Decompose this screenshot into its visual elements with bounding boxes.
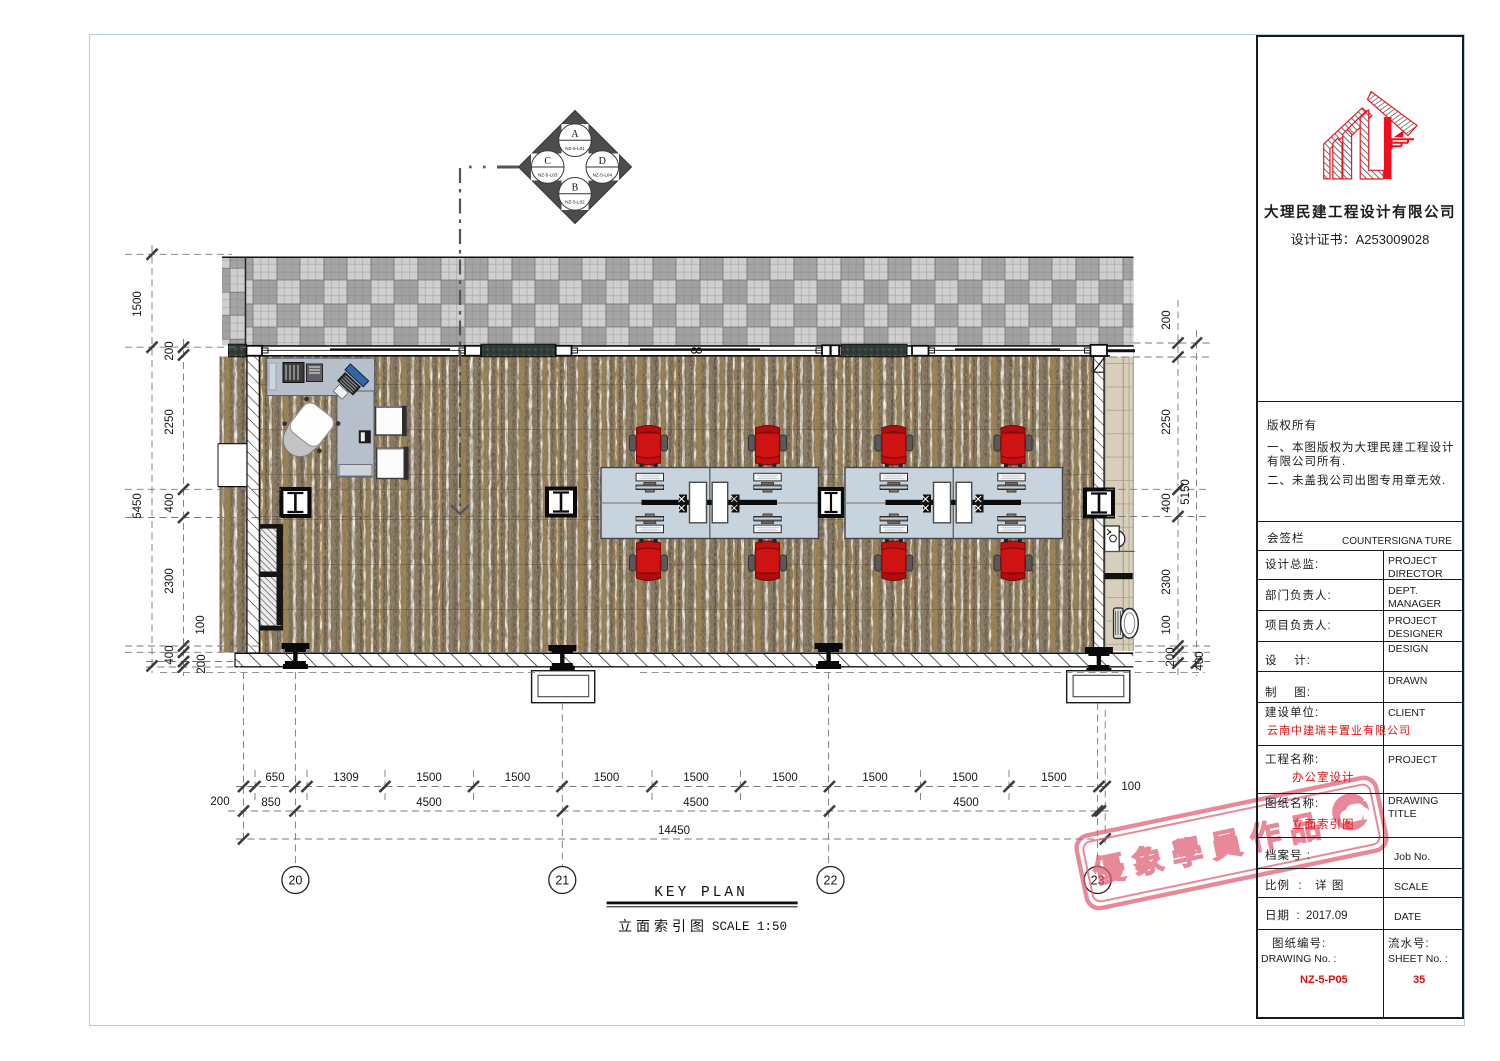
svg-text:4500: 4500 [953, 797, 979, 809]
svg-text:NZ-5-L03: NZ-5-L03 [538, 173, 558, 178]
svg-text:14450: 14450 [658, 825, 690, 837]
svg-text:200: 200 [196, 654, 208, 673]
svg-text:21: 21 [555, 874, 569, 888]
svg-text:400: 400 [164, 645, 176, 664]
svg-text:1500: 1500 [683, 772, 709, 784]
svg-text:D: D [599, 156, 606, 167]
svg-text:200: 200 [1161, 310, 1173, 329]
svg-text:C: C [544, 156, 551, 167]
svg-text:立面索引图: 立面索引图 [618, 918, 708, 934]
svg-text:1309: 1309 [333, 772, 359, 784]
svg-text:100: 100 [1161, 615, 1173, 634]
svg-text:650: 650 [265, 772, 284, 784]
svg-text:SCALE 1:50: SCALE 1:50 [712, 920, 787, 934]
svg-text:1500: 1500 [1041, 772, 1067, 784]
svg-text:20: 20 [288, 874, 302, 888]
svg-text:2300: 2300 [1161, 569, 1173, 595]
svg-text:100: 100 [1121, 781, 1140, 793]
svg-text:400: 400 [1194, 651, 1206, 670]
svg-text:2250: 2250 [164, 409, 176, 435]
svg-text:1500: 1500 [772, 772, 798, 784]
svg-text:NZ-5-L01: NZ-5-L01 [565, 146, 585, 151]
svg-text:B: B [572, 183, 579, 194]
svg-text:200: 200 [164, 341, 176, 360]
svg-text:2300: 2300 [164, 568, 176, 594]
svg-text:200: 200 [1165, 647, 1177, 666]
svg-text:5150: 5150 [1180, 479, 1192, 505]
svg-text:400: 400 [164, 493, 176, 512]
svg-text:1500: 1500 [952, 772, 978, 784]
svg-text:200: 200 [210, 796, 229, 808]
svg-text:NZ-5-L04: NZ-5-L04 [593, 173, 613, 178]
svg-text:KEY PLAN: KEY PLAN [654, 885, 748, 901]
svg-text:4500: 4500 [683, 797, 709, 809]
svg-text:5450: 5450 [132, 493, 144, 519]
svg-text:22: 22 [824, 874, 838, 888]
svg-text:1500: 1500 [862, 772, 888, 784]
svg-text:2250: 2250 [1161, 409, 1173, 435]
svg-text:850: 850 [261, 797, 280, 809]
svg-text:A: A [571, 129, 579, 140]
svg-text:4500: 4500 [416, 797, 442, 809]
svg-text:1500: 1500 [594, 772, 620, 784]
svg-text:100: 100 [195, 615, 207, 634]
svg-text:1500: 1500 [416, 772, 442, 784]
svg-text:1500: 1500 [505, 772, 531, 784]
svg-text:NZ-5-L02: NZ-5-L02 [565, 199, 585, 204]
svg-text:1500: 1500 [132, 291, 144, 317]
svg-text:400: 400 [1161, 493, 1173, 512]
